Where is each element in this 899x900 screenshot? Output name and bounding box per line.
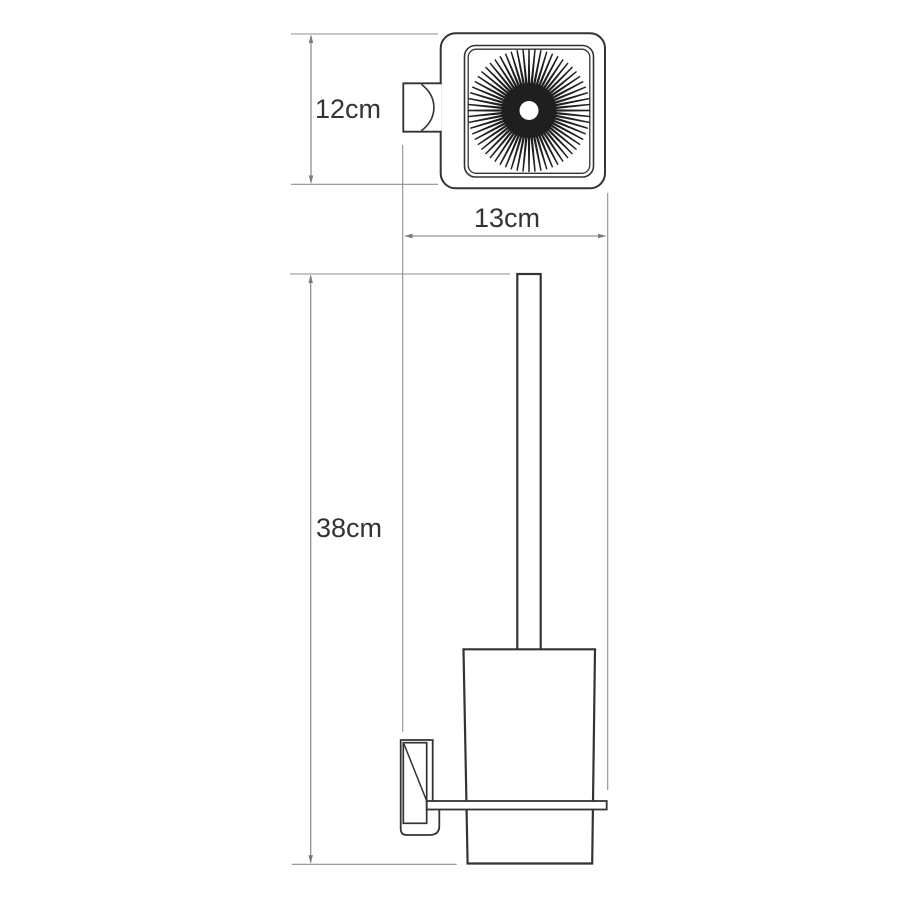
wall-clip-top-view: [403, 83, 442, 131]
technical-drawing-canvas: 12cm 13cm 38cm: [0, 0, 899, 900]
brush-holder-dimension-diagram: 12cm 13cm 38cm: [0, 0, 899, 900]
wall-bracket-plate: [403, 743, 426, 824]
dimension-label-top-height: 12cm: [315, 94, 381, 124]
top-view: [403, 33, 605, 188]
arrow-up-icon: [309, 35, 313, 44]
brush-handle-hole: [520, 101, 539, 120]
holder-rail: [427, 801, 607, 810]
front-view: [401, 274, 607, 864]
brush-handle: [517, 274, 540, 650]
arrow-left-icon: [404, 234, 413, 239]
brush-cup: [464, 649, 596, 863]
dimension-label-front-height: 38cm: [316, 513, 382, 543]
brush-bristles-starburst: [468, 49, 591, 172]
arrow-right-icon: [598, 234, 607, 239]
arrow-down-icon: [309, 176, 313, 185]
dimension-label-top-width: 13cm: [474, 203, 540, 233]
arrow-down-icon: [309, 855, 313, 864]
arrow-up-icon: [309, 275, 313, 284]
